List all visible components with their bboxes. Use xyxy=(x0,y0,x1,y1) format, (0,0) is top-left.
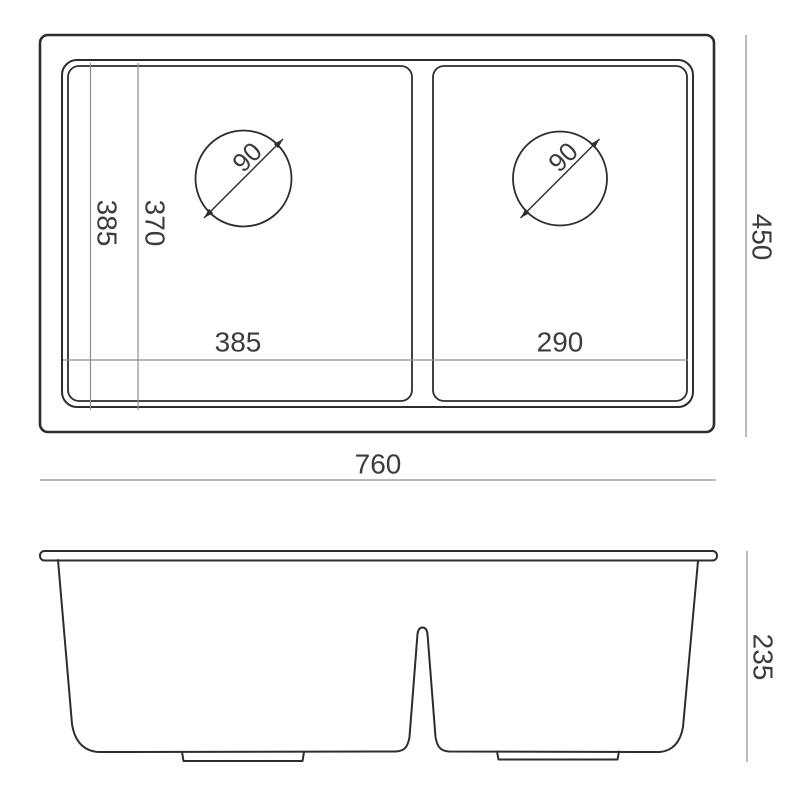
height-label: 235 xyxy=(748,634,779,681)
side-rim-bar xyxy=(40,551,717,561)
side-view: 235 xyxy=(40,551,779,762)
right-drain-diameter-label: 90 xyxy=(542,136,584,178)
left-drain-diameter-label: 90 xyxy=(226,136,268,178)
overall-depth-label: 450 xyxy=(747,214,778,261)
left-bowl-width-label: 385 xyxy=(215,327,262,358)
side-body-profile xyxy=(58,560,698,752)
drawing-page: 385 370 90 90 385 290 450 760 235 xyxy=(0,0,800,794)
bowl-depth-outer-label: 385 xyxy=(92,200,123,247)
bowl-depth-inner-label: 370 xyxy=(140,200,171,247)
top-view: 385 370 90 90 385 290 450 760 xyxy=(40,35,778,480)
sink-technical-drawing: 385 370 90 90 385 290 450 760 235 xyxy=(0,0,800,794)
overall-width-label: 760 xyxy=(355,449,402,480)
right-bowl-width-label: 290 xyxy=(537,327,584,358)
left-drain-pad xyxy=(182,752,304,761)
